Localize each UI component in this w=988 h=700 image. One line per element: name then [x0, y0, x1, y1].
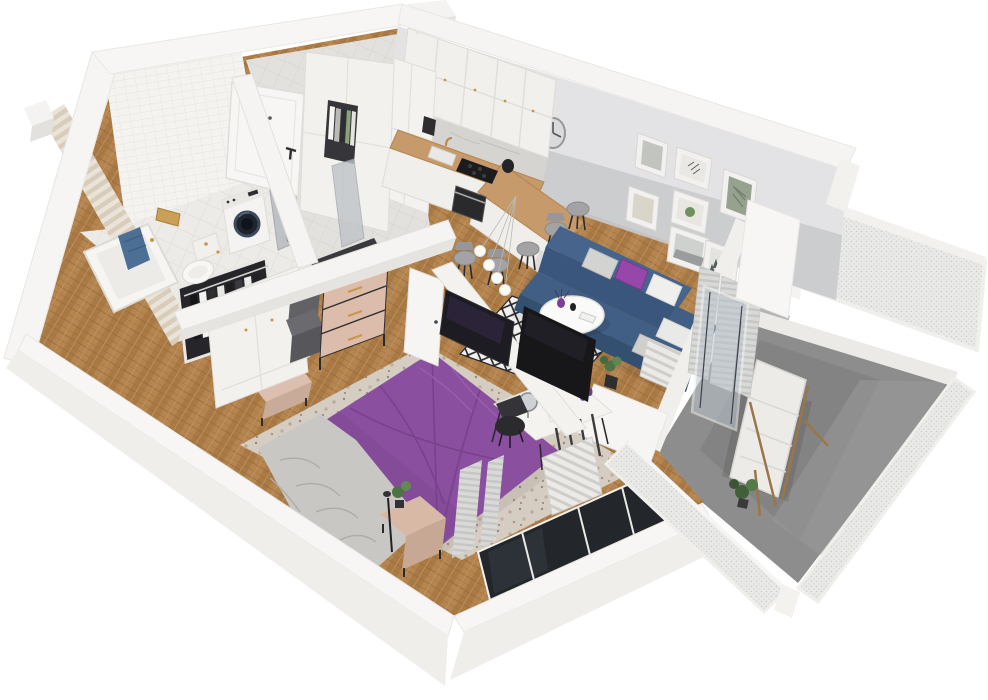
purple-vase — [557, 298, 565, 308]
kettle — [502, 159, 514, 173]
wall-return-pillar — [736, 200, 800, 318]
towel-hook — [216, 250, 219, 253]
floor-plan-render — [0, 0, 988, 700]
peephole — [268, 116, 272, 120]
black-vase — [570, 303, 576, 311]
bedroom-door-open — [404, 268, 444, 366]
apartment-3d-floor-plan — [0, 0, 988, 700]
